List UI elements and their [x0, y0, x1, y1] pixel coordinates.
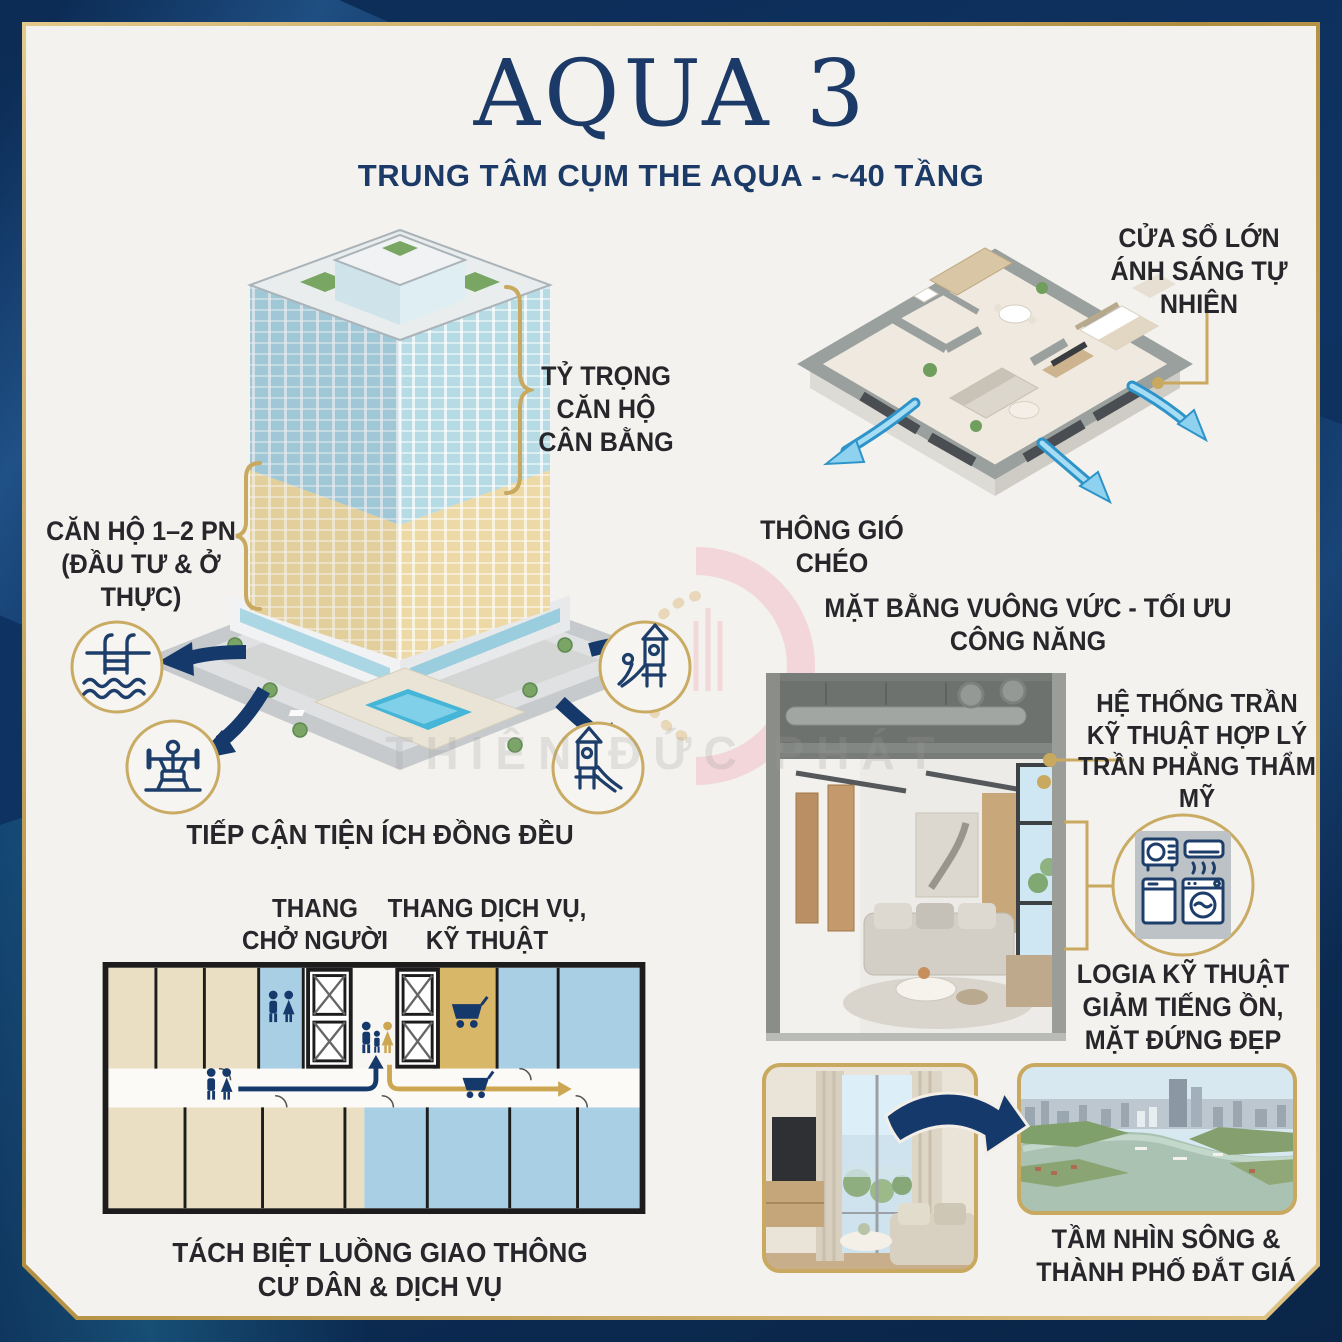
- washing-machine-front-load-icon: [1183, 879, 1223, 923]
- air-conditioner-outdoor-icon: [1143, 839, 1177, 870]
- amenity-caption: TIẾP CẬN TIỆN ÍCH ĐỒNG ĐỀU: [175, 818, 584, 852]
- gym-icon: [127, 721, 219, 813]
- poster-background: AQUA 3 TRUNG TÂM CỤM THE AQUA - ~40 TẦNG: [0, 0, 1342, 1342]
- service-lift-label: THANG DỊCH VỤ, KỸ THUẬT: [380, 893, 594, 956]
- infographic-canvas: AQUA 3 TRUNG TÂM CỤM THE AQUA - ~40 TẦNG: [26, 26, 1316, 1316]
- swimming-pool-icon: [72, 622, 162, 712]
- floor-plan-diagram: [98, 962, 650, 1214]
- washing-machine-top-load-icon: [1143, 879, 1175, 923]
- passenger-lift-label: THANG CHỞ NGƯỜI: [236, 893, 394, 956]
- page-subtitle: TRUNG TÂM CỤM THE AQUA - ~40 TẦNG: [26, 158, 1316, 194]
- balance-ratio-label: TỶ TRỌNG CĂN HỘ CÂN BẰNG: [504, 360, 709, 459]
- window-label: CỬA SỔ LỚN ÁNH SÁNG TỰ NHIÊN: [1073, 222, 1324, 321]
- ceiling-system-label: HỆ THỐNG TRẦN KỸ THUẬT HỢP LÝ TRẦN PHẲNG…: [1058, 688, 1337, 815]
- floorplan-caption: TÁCH BIỆT LUỒNG GIAO THÔNG CƯ DÂN & DỊCH…: [157, 1236, 603, 1304]
- playground-slide-icon: [600, 622, 690, 712]
- view-caption: TẦM NHÌN SÔNG & THÀNH PHỐ ĐẮT GIÁ: [1027, 1223, 1306, 1289]
- ventilation-label: THÔNG GIÓ CHÉO: [748, 514, 915, 580]
- logia-appliances-badge: [1107, 809, 1259, 961]
- gold-frame: AQUA 3 TRUNG TÂM CỤM THE AQUA - ~40 TẦNG: [22, 22, 1320, 1320]
- page-title: AQUA 3: [26, 46, 1316, 143]
- river-city-view-photo: [1017, 1063, 1297, 1215]
- unit-mix-label: CĂN HỘ 1–2 PN (ĐẦU TƯ & Ở THỰC): [41, 515, 240, 614]
- watermark-text: THIÊN ĐỨC PHÁT: [356, 726, 976, 780]
- floorplate-caption: MẶT BẰNG VUÔNG VỨC - TỐI ƯU CÔNG NĂNG: [786, 592, 1270, 658]
- view-arrow-icon: [880, 1082, 1040, 1178]
- logia-label: LOGIA KỸ THUẬT GIẢM TIẾNG ỒN, MẶT ĐỨNG Đ…: [1044, 958, 1323, 1057]
